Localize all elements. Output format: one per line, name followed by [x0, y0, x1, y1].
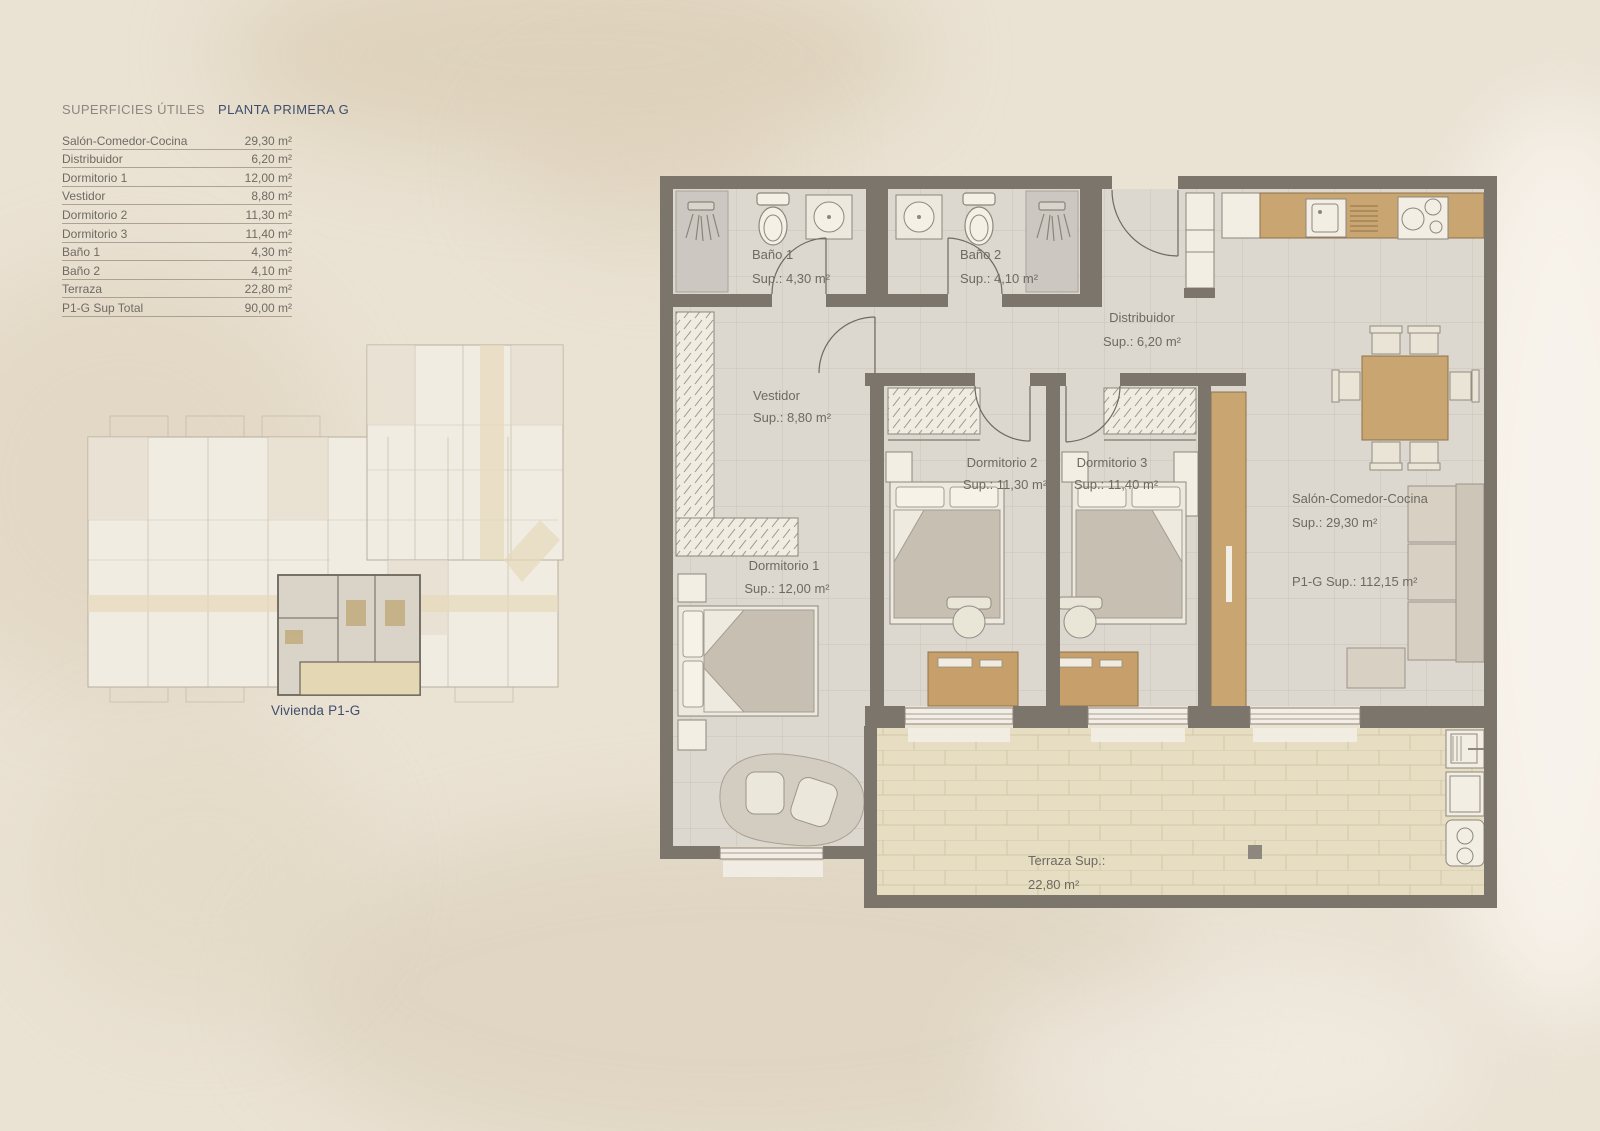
bedside-table [678, 720, 706, 750]
terrace-drain [1248, 845, 1262, 859]
wardrobe [1104, 388, 1196, 440]
room-label-bano2: Baño 2 [960, 247, 1001, 262]
bedside-table [678, 574, 706, 602]
laundry-sink-icon [1446, 730, 1484, 768]
room-label-terraza: Terraza Sup.: [1028, 853, 1105, 868]
room-label-dormitorio1: Dormitorio 1 [749, 558, 820, 573]
room-sup-distribuidor: Sup.: 6,20 m² [1103, 334, 1182, 349]
room-sup-dormitorio3: Sup.: 11,40 m² [1074, 477, 1159, 492]
cooktop-icon [1398, 197, 1448, 239]
washbasin-icon [896, 195, 942, 239]
plan-canvas: Baño 1 Sup.: 4,30 m² Baño 2 Sup.: 4,10 m… [0, 0, 1600, 1131]
window [905, 708, 1013, 742]
desk [928, 652, 1018, 706]
bedside-table [886, 452, 912, 482]
toilet-icon [963, 193, 995, 245]
floor-terrace [877, 728, 1484, 895]
room-sup-dormitorio1: Sup.: 12,00 m² [744, 581, 830, 596]
overview-plan [88, 345, 563, 702]
room-label-dormitorio2: Dormitorio 2 [967, 455, 1038, 470]
sliding-wood-door [1211, 392, 1246, 708]
room-sup-bano1: Sup.: 4,30 m² [752, 271, 831, 286]
wardrobe [888, 388, 980, 440]
boiler-icon [1446, 820, 1484, 866]
room-label-dormitorio3: Dormitorio 3 [1077, 455, 1148, 470]
overview-highlighted-unit [278, 575, 420, 695]
floor-plan: Baño 1 Sup.: 4,30 m² Baño 2 Sup.: 4,10 m… [660, 176, 1497, 908]
room-label-distribuidor: Distribuidor [1109, 310, 1175, 325]
desk [1048, 652, 1138, 706]
floorplan-page: { "surface_table": { "title_left": "SUPE… [0, 0, 1600, 1131]
room-total-salon: P1-G Sup.: 112,15 m² [1292, 574, 1418, 589]
room-sup-salon: Sup.: 29,30 m² [1292, 515, 1378, 530]
sink-icon [1306, 199, 1346, 237]
kitchen-counter [1222, 193, 1484, 239]
room-label-bano1: Baño 1 [752, 247, 793, 262]
lounge-chair [746, 772, 784, 814]
room-label-salon: Salón-Comedor-Cocina [1292, 491, 1429, 506]
window [1250, 708, 1360, 742]
room-sup-vestidor: Sup.: 8,80 m² [753, 410, 832, 425]
room-label-vestidor: Vestidor [753, 388, 801, 403]
bed [678, 606, 818, 716]
window [720, 848, 823, 877]
dining-table [1362, 356, 1448, 440]
toilet-icon [757, 193, 789, 245]
room-sup-terraza: 22,80 m² [1028, 877, 1080, 892]
window [1088, 708, 1188, 742]
room-sup-dormitorio2: Sup.: 11,30 m² [963, 477, 1048, 492]
room-sup-bano2: Sup.: 4,10 m² [960, 271, 1039, 286]
washbasin-icon [806, 195, 852, 239]
tall-cabinet [1186, 193, 1214, 288]
washing-machine-icon [1446, 772, 1484, 816]
rug [720, 754, 864, 846]
